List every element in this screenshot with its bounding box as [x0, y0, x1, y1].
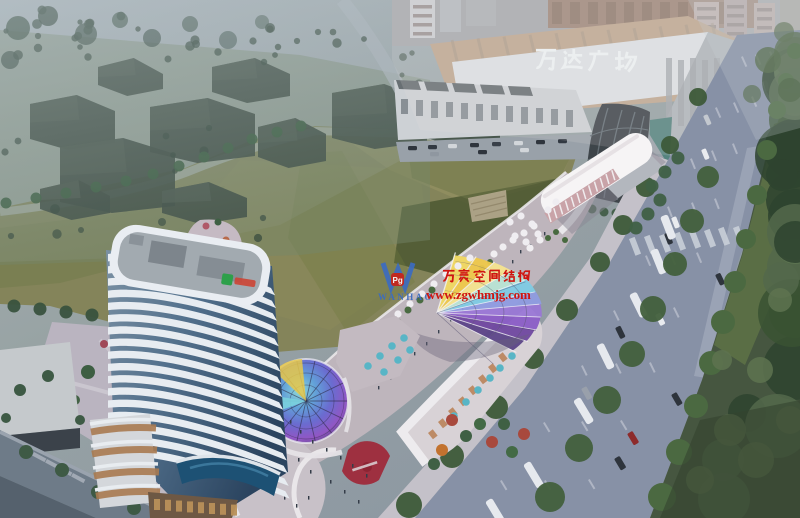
svg-text:www.zgwhmjg.com: www.zgwhmjg.com — [426, 287, 531, 302]
svg-text:Pg: Pg — [393, 276, 403, 285]
